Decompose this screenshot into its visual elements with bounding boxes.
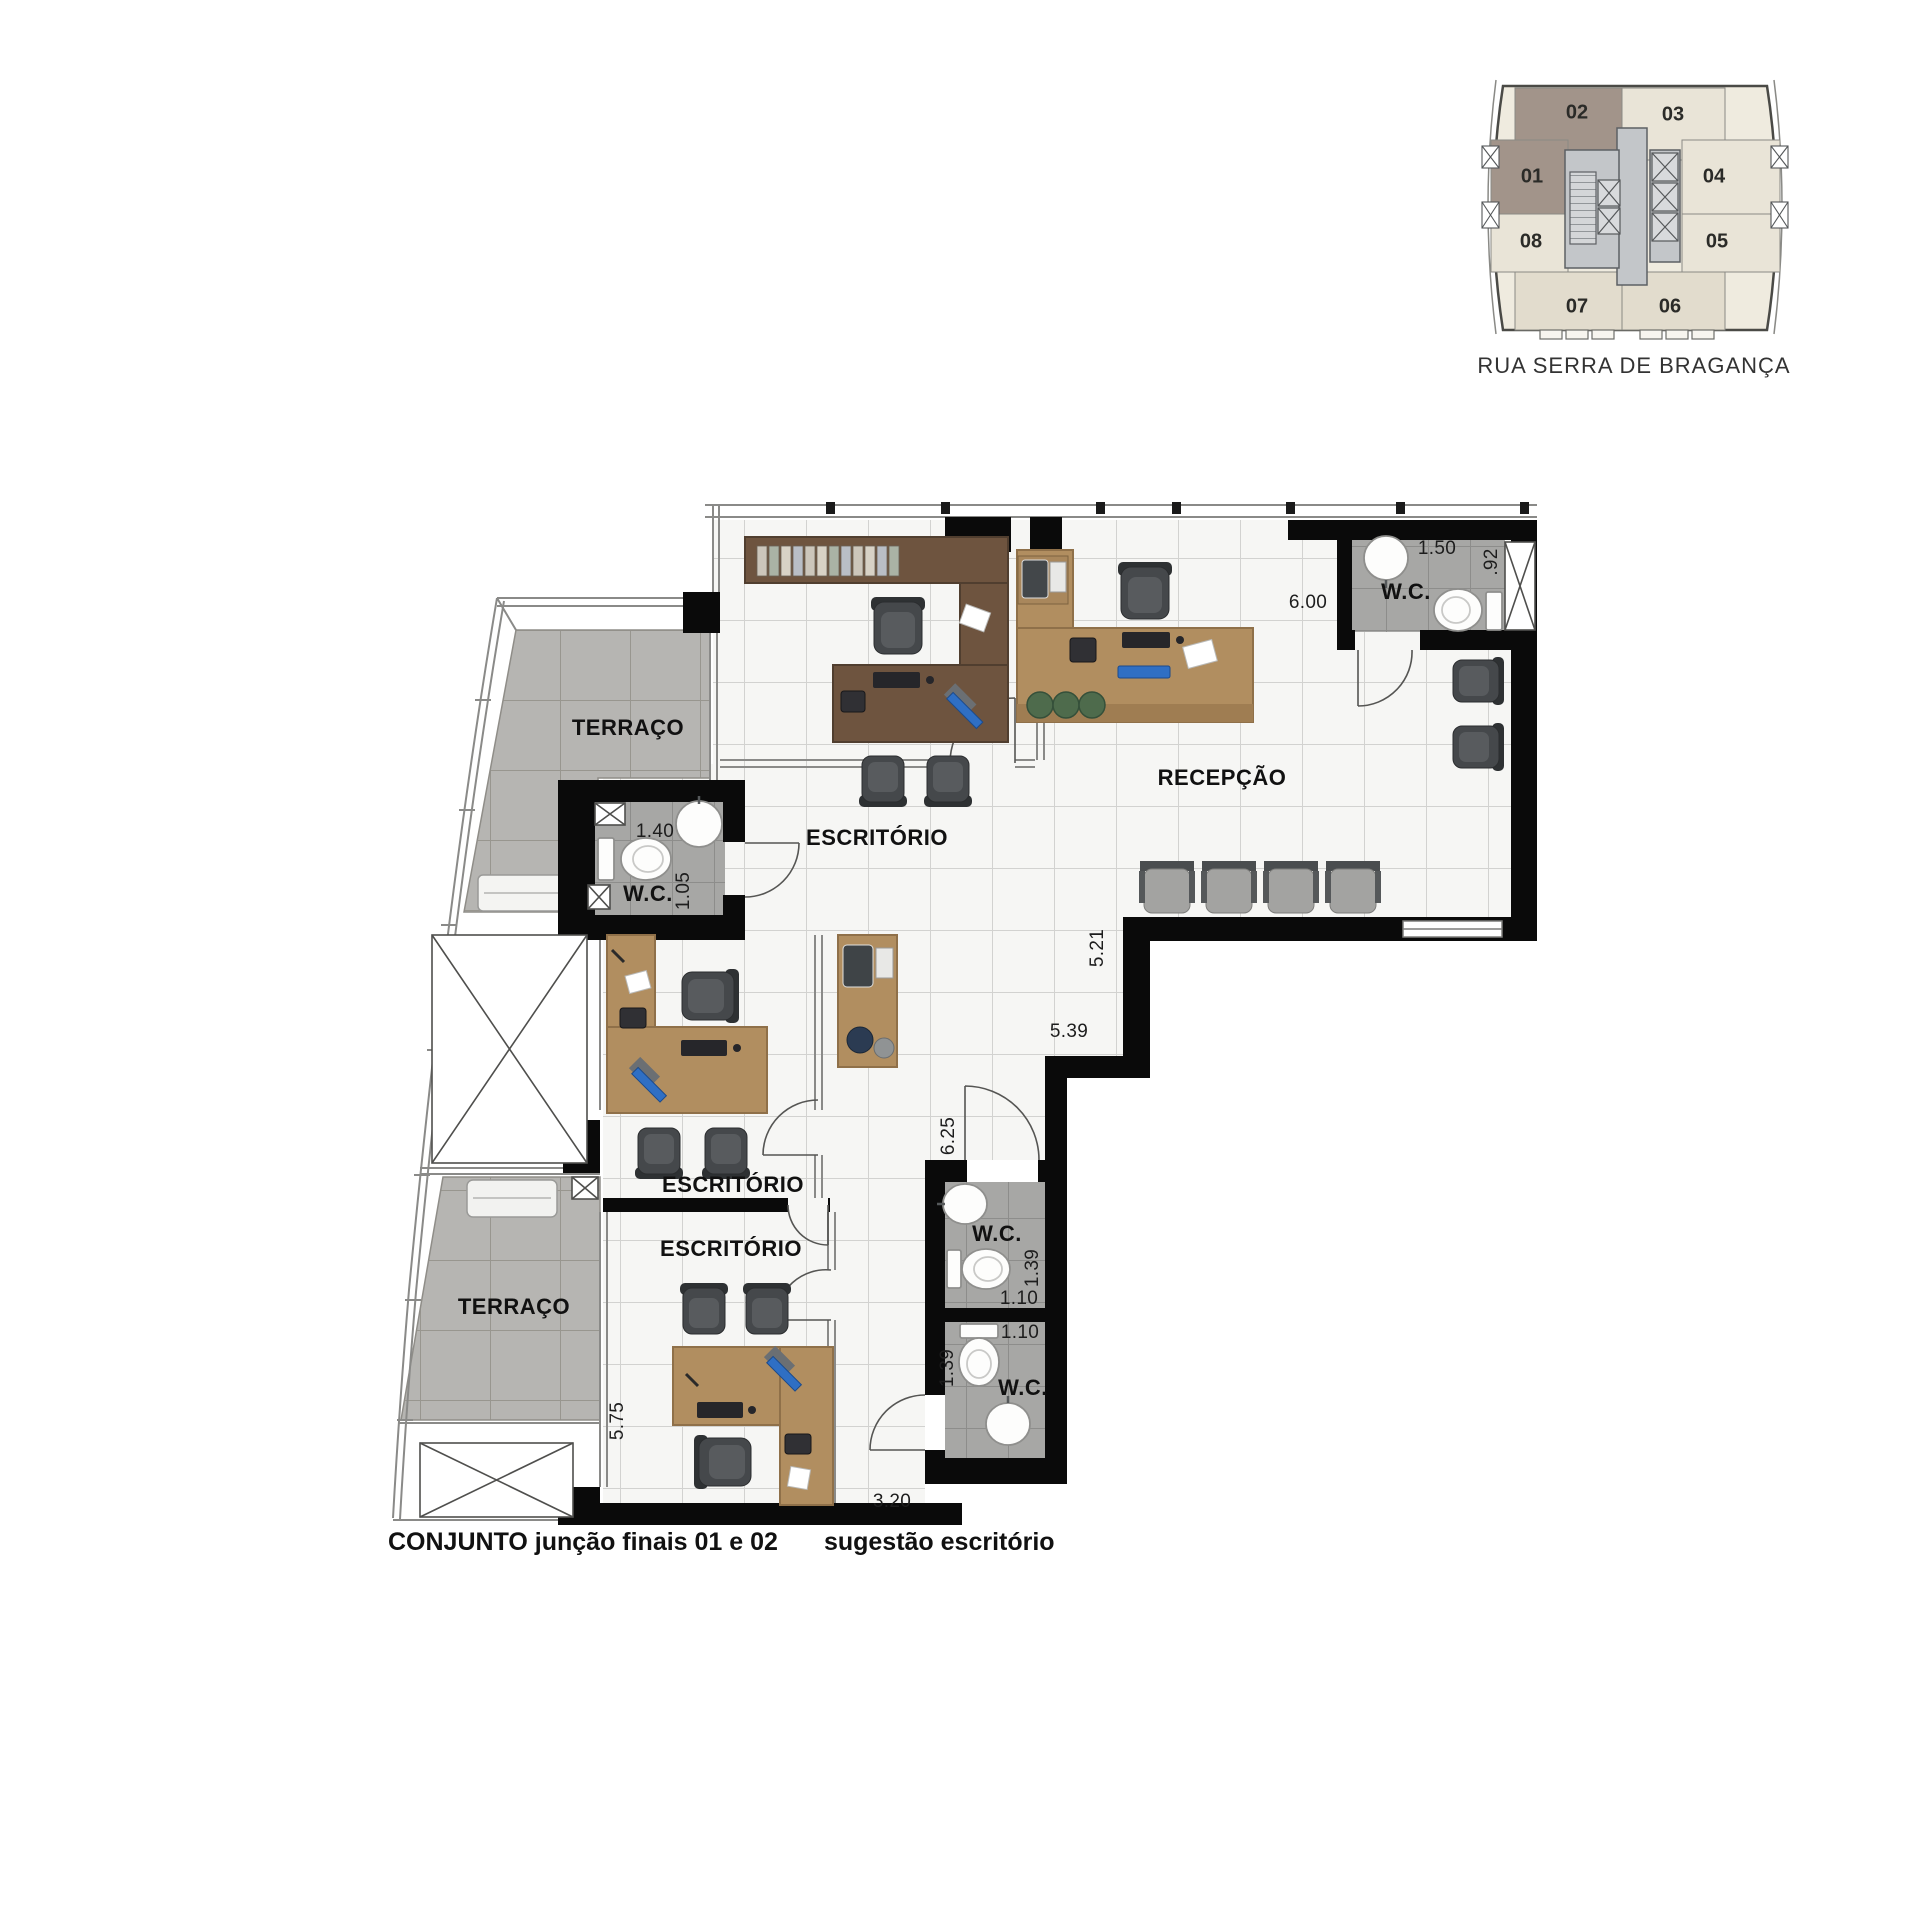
phone-icon bbox=[1070, 638, 1096, 662]
key-unit-01-label: 01 bbox=[1521, 166, 1543, 189]
chair-guest bbox=[743, 1283, 791, 1334]
toilet-tank-icon bbox=[947, 1250, 961, 1288]
dimension-reception-width: 6.00 bbox=[1289, 592, 1327, 614]
phone-icon bbox=[620, 1008, 646, 1028]
floorplan-sheet: TERRAÇO TERRAÇO ESCRITÓRIO ESCRITÓRIO ES… bbox=[0, 0, 1920, 1920]
keyboard-icon bbox=[873, 672, 920, 688]
toilet-tank-icon bbox=[960, 1324, 998, 1338]
paper-icon bbox=[787, 1466, 810, 1489]
toilet-tank-icon bbox=[1486, 592, 1502, 630]
chair-executive bbox=[1118, 562, 1172, 619]
plants-icon bbox=[1027, 692, 1105, 718]
room-label-office-2: ESCRITÓRIO bbox=[662, 1172, 804, 1198]
chair-executive bbox=[871, 597, 925, 654]
key-unit-05-label: 05 bbox=[1706, 231, 1728, 254]
dimension-office3-width: 3.20 bbox=[873, 1491, 911, 1513]
chair-executive bbox=[682, 969, 739, 1023]
coffee-machine-icon bbox=[1050, 562, 1066, 592]
printer-icon bbox=[876, 948, 893, 978]
key-unit-05-area bbox=[1682, 214, 1780, 272]
chair-guest bbox=[680, 1283, 728, 1334]
room-label-terrace-upper: TERRAÇO bbox=[572, 715, 684, 741]
keyboard-icon bbox=[697, 1402, 743, 1418]
room-label-wc-2: W.C. bbox=[1381, 579, 1431, 605]
mouse-icon bbox=[1176, 636, 1184, 644]
main-plan bbox=[393, 502, 1537, 1525]
dimension-hall-width: 5.39 bbox=[1050, 1021, 1088, 1043]
sink-icon bbox=[986, 1403, 1030, 1445]
chair-executive bbox=[694, 1435, 751, 1489]
mouse-icon bbox=[733, 1044, 741, 1052]
key-plan bbox=[1482, 80, 1788, 339]
dimension-wc1-depth: 1.05 bbox=[673, 872, 695, 910]
dimension-wc2-depth: .92 bbox=[1481, 548, 1503, 575]
room-label-office-3: ESCRITÓRIO bbox=[660, 1236, 802, 1262]
toilet-tank-icon bbox=[598, 838, 614, 880]
keyboard-icon bbox=[681, 1040, 727, 1056]
dimension-wc4-depth: 1.39 bbox=[937, 1349, 959, 1387]
mouse-icon bbox=[926, 676, 934, 684]
dimension-wc3-depth: 1.39 bbox=[1022, 1249, 1044, 1287]
caption: CONJUNTO junção finais 01 e 02 sugestão … bbox=[388, 1528, 1055, 1557]
sink-square-icon bbox=[843, 945, 873, 987]
dimension-wc3-width: 1.10 bbox=[1000, 1288, 1038, 1310]
monitor-icon bbox=[1118, 666, 1170, 678]
room-label-wc-1: W.C. bbox=[623, 881, 673, 907]
key-unit-07-label: 07 bbox=[1566, 296, 1588, 319]
window-mullions bbox=[826, 502, 1529, 514]
dimension-reception-depth: 5.21 bbox=[1087, 929, 1109, 967]
floorplan-drawing bbox=[0, 0, 1920, 1920]
key-unit-08-label: 08 bbox=[1520, 231, 1542, 254]
key-unit-04-area bbox=[1682, 140, 1780, 214]
caption-title: CONJUNTO junção finais 01 e 02 bbox=[388, 1528, 778, 1557]
dimension-wc1-width: 1.40 bbox=[636, 821, 674, 843]
chair-guest bbox=[924, 756, 972, 807]
key-unit-02-label: 02 bbox=[1566, 102, 1588, 125]
kettle-icon bbox=[874, 1038, 894, 1058]
chair-guest bbox=[1453, 657, 1504, 705]
sink-icon bbox=[1364, 536, 1408, 580]
key-plan-bottom-ticks bbox=[1540, 330, 1714, 339]
phone-icon bbox=[841, 691, 865, 712]
dimension-wc4-width: 1.10 bbox=[1001, 1322, 1039, 1344]
sink-icon bbox=[676, 801, 722, 847]
key-unit-03-label: 03 bbox=[1662, 104, 1684, 127]
coffee-maker-icon bbox=[847, 1027, 873, 1053]
dimension-hall-depth: 6.25 bbox=[938, 1117, 960, 1155]
key-unit-06-label: 06 bbox=[1659, 296, 1681, 319]
keyboard-icon bbox=[1122, 632, 1170, 648]
room-label-wc-4: W.C. bbox=[998, 1375, 1048, 1401]
caption-subtitle: sugestão escritório bbox=[824, 1528, 1055, 1557]
reception-bottom-window bbox=[1403, 921, 1502, 937]
street-label: RUA SERRA DE BRAGANÇA bbox=[1477, 353, 1790, 379]
kitchenette bbox=[838, 935, 897, 1067]
room-label-wc-3: W.C. bbox=[972, 1221, 1022, 1247]
chair-guest bbox=[1453, 723, 1504, 771]
key-unit-04-label: 04 bbox=[1703, 166, 1725, 189]
key-plan-core bbox=[1565, 128, 1680, 285]
room-label-office-1: ESCRITÓRIO bbox=[806, 825, 948, 851]
phone-icon bbox=[785, 1434, 811, 1454]
sink-icon bbox=[943, 1184, 987, 1224]
mouse-icon bbox=[748, 1406, 756, 1414]
dimension-wc2-width: 1.50 bbox=[1418, 538, 1456, 560]
stairs-icon bbox=[1570, 172, 1596, 244]
dimension-office3-depth: 5.75 bbox=[607, 1402, 629, 1440]
sink-square-icon bbox=[1022, 560, 1048, 598]
room-label-reception: RECEPÇÃO bbox=[1158, 765, 1287, 791]
chair-guest bbox=[859, 756, 907, 807]
room-label-terrace-lower: TERRAÇO bbox=[458, 1294, 570, 1320]
